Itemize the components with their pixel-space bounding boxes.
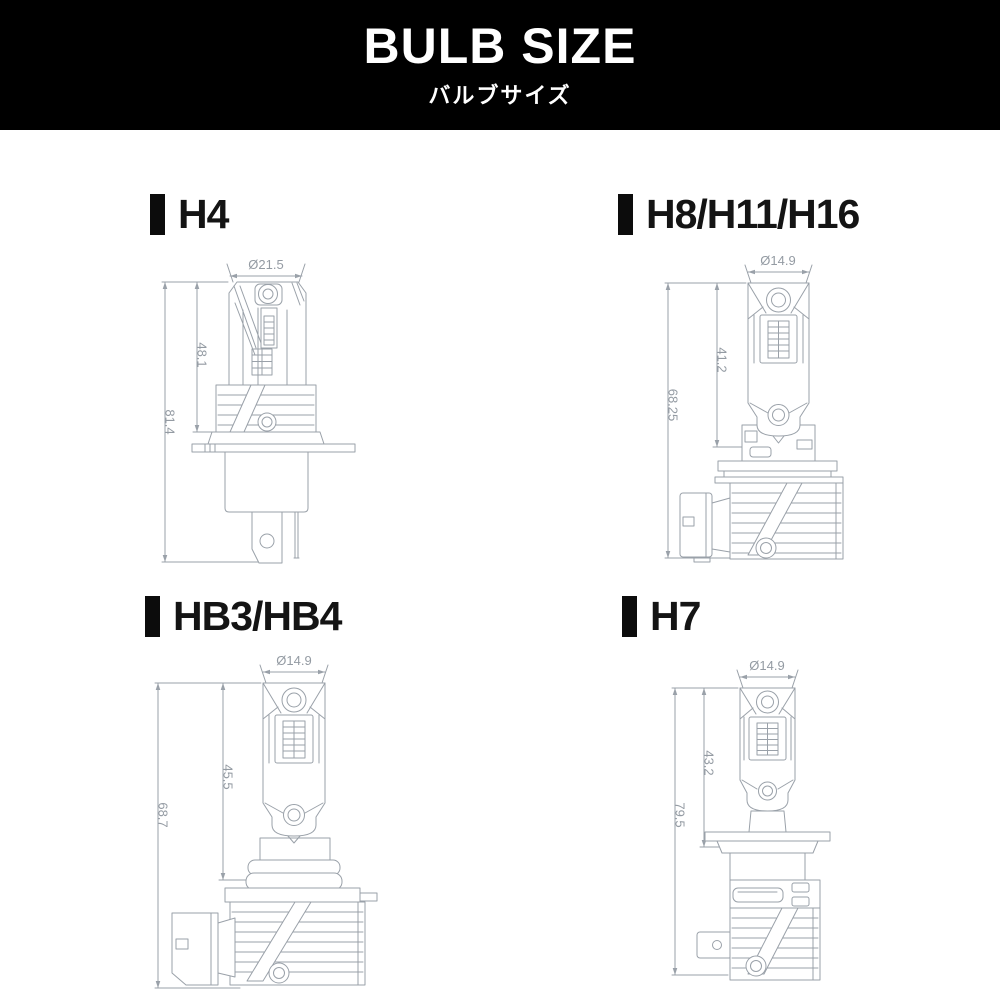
dim-diameter-value: Ø21.5	[248, 257, 283, 272]
section-title-h4: H4	[178, 194, 228, 235]
dim-overall-value: 68.25	[666, 389, 681, 422]
section-label-h8-h11-h16: H8/H11/H16	[618, 194, 859, 235]
hb3-dim-upper: 45.5	[219, 683, 252, 880]
dim-overall-value: 79.5	[673, 802, 688, 827]
h8-h11-h16-technical-drawing: Ø14.9 68.25 41.2	[650, 255, 850, 565]
h8-dim-upper: 41.2	[713, 283, 745, 447]
h4-bulb-body	[192, 282, 355, 563]
hb3-hb4-technical-drawing: Ø14.9 68.7 45.5	[140, 655, 380, 995]
page-title: BULB SIZE	[364, 20, 637, 73]
hb3-bulb-body	[172, 683, 377, 985]
dim-upper-value: 48.1	[195, 342, 210, 367]
dim-upper-value: 41.2	[715, 347, 730, 372]
h8-bulb-body	[680, 283, 843, 562]
section-title-hb3-hb4: HB3/HB4	[173, 596, 341, 637]
bullet-bar	[145, 596, 160, 637]
dim-upper-value: 43.2	[702, 750, 717, 775]
section-title-h7: H7	[650, 596, 700, 637]
dim-diameter-value: Ø14.9	[760, 255, 795, 268]
dim-overall-value: 68.7	[156, 802, 171, 827]
section-label-h4: H4	[150, 194, 228, 235]
section-label-hb3-hb4: HB3/HB4	[145, 596, 341, 637]
h7-technical-drawing: Ø14.9 79.5 43.2	[665, 660, 860, 995]
bullet-bar	[150, 194, 165, 235]
header: BULB SIZE バルブサイズ	[0, 0, 1000, 130]
bullet-bar	[618, 194, 633, 235]
dim-overall-value: 81.4	[163, 409, 178, 434]
section-label-h7: H7	[622, 596, 700, 637]
dim-upper-value: 45.5	[221, 764, 236, 789]
h4-technical-drawing: Ø21.5 81.4 48.1	[155, 255, 360, 570]
h7-dim-diameter: Ø14.9	[737, 660, 798, 688]
h7-bulb-body	[697, 688, 830, 980]
hb3-dim-diameter: Ø14.9	[260, 655, 328, 683]
dim-diameter-value: Ø14.9	[749, 660, 784, 673]
h8-dim-diameter: Ø14.9	[745, 255, 812, 283]
section-title-h8-h11-h16: H8/H11/H16	[646, 194, 859, 235]
bullet-bar	[622, 596, 637, 637]
dim-diameter-value: Ø14.9	[276, 655, 311, 668]
page-subtitle: バルブサイズ	[428, 78, 571, 110]
h7-dim-upper: 43.2	[700, 688, 725, 847]
bulb-size-infographic: BULB SIZE バルブサイズ H4 H8/H11/H16 HB3/HB4 H…	[0, 0, 1000, 1000]
h4-dim-diameter: Ø21.5	[227, 257, 305, 282]
